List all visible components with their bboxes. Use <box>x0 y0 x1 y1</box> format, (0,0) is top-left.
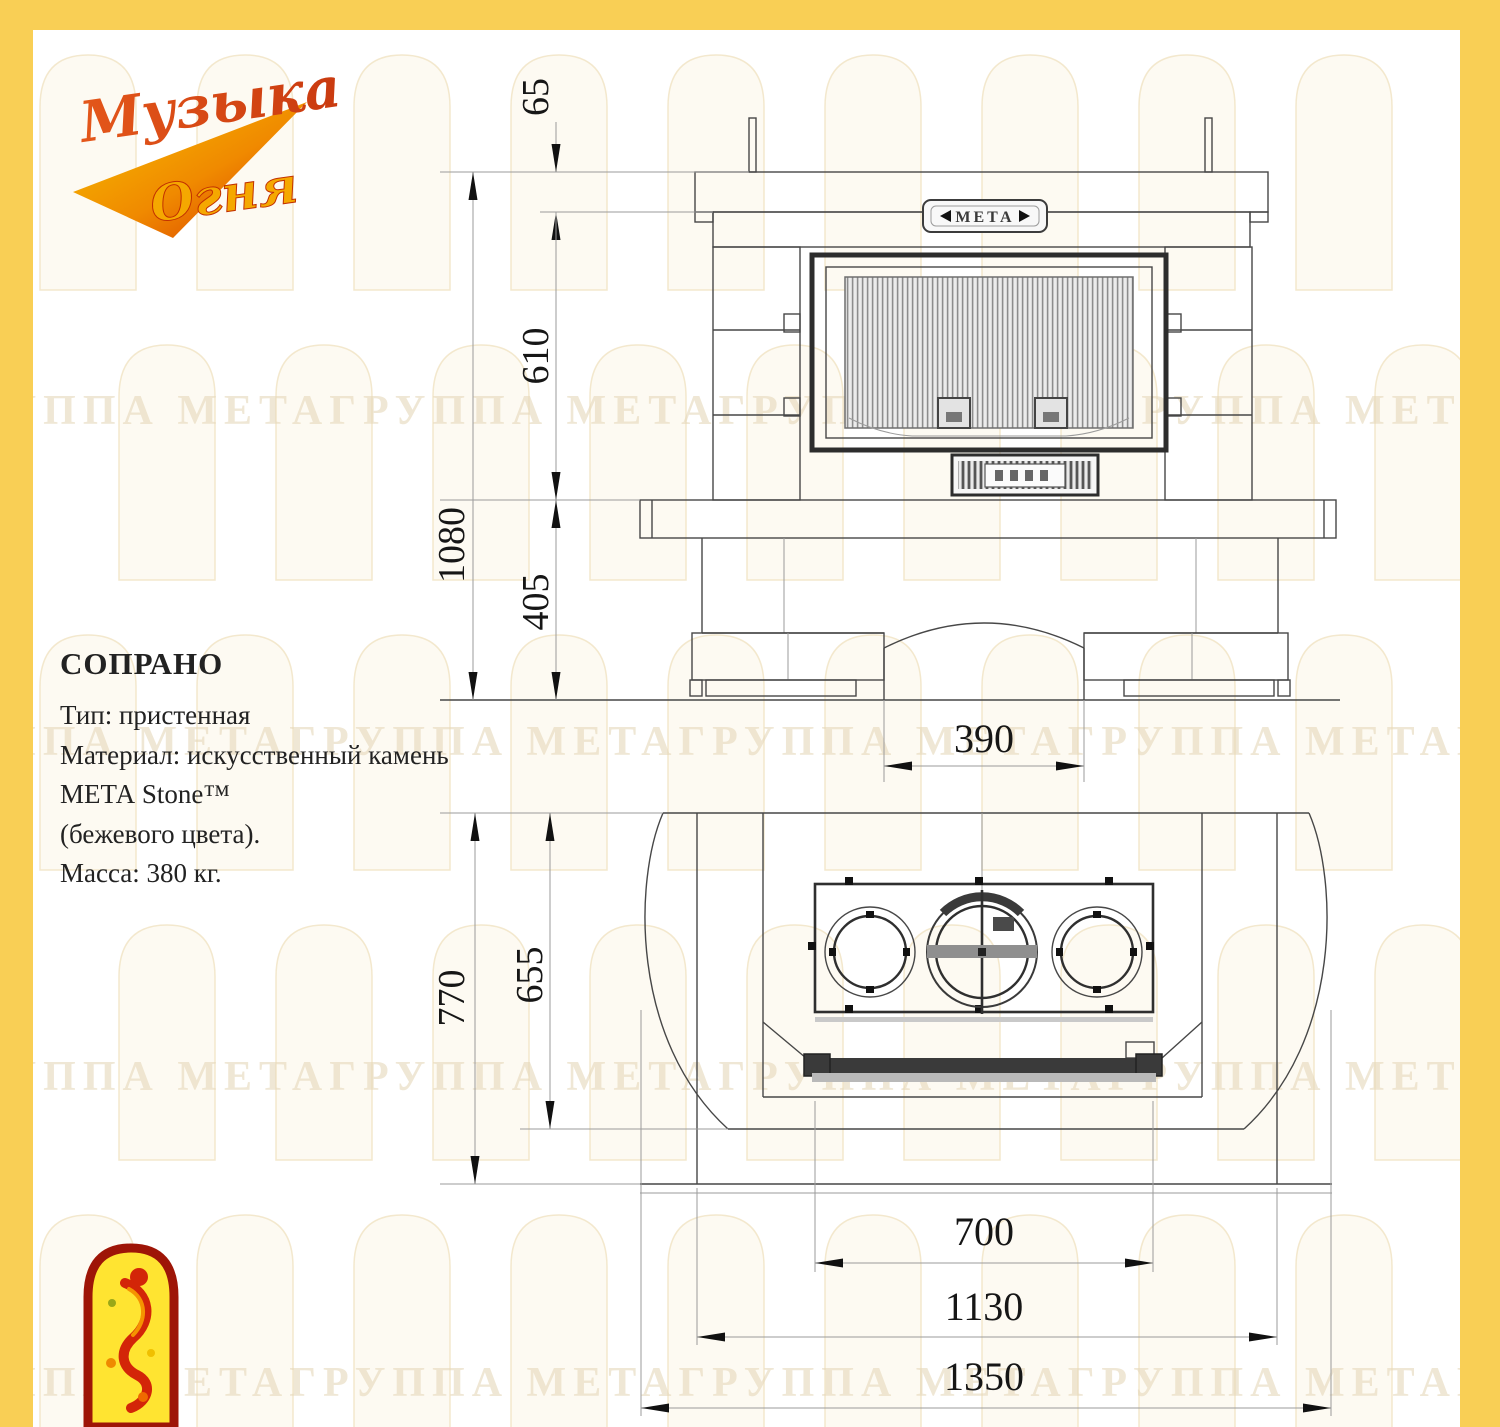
dim-total-height: 1080 <box>431 507 473 583</box>
plan-view: 770 655 700 1130 1350 <box>431 813 1332 1416</box>
nameplate-text: МЕТА <box>955 209 1014 226</box>
dim-base-height: 405 <box>515 574 557 631</box>
vent-grille <box>952 455 1098 495</box>
spec-text-block: СОПРАНО Тип: пристенная Материал: искусс… <box>60 646 449 894</box>
column-left <box>713 247 800 500</box>
emblem-dot-orange <box>106 1358 116 1368</box>
spec-mass: Масса: 380 кг. <box>60 854 449 894</box>
plan-side-right <box>1244 813 1327 1129</box>
base-arch-niche <box>884 623 1084 648</box>
dim-total-width: 1350 <box>944 1354 1024 1399</box>
front-dimensions: 1080 65 610 405 390 <box>431 78 1084 782</box>
mantel-end-cap-left <box>695 212 713 222</box>
plan-side-left <box>645 813 728 1129</box>
spec-material: Материал: искусственный камень <box>60 736 449 776</box>
dim-insert-width: 700 <box>954 1209 1014 1254</box>
flue-outlet-center <box>927 890 1037 1014</box>
frame-left <box>0 0 33 1427</box>
dim-firebox-height: 610 <box>515 328 557 385</box>
convection-outlet-left <box>825 907 915 997</box>
convection-outlet-right <box>1052 907 1142 997</box>
meta-nameplate: МЕТА <box>923 200 1047 232</box>
mantel-end-cap-right <box>1250 212 1268 222</box>
plan-glass-front <box>804 1054 1162 1082</box>
dim-niche-width: 390 <box>954 716 1014 761</box>
spec-material-color: (бежевого цвета). <box>60 815 449 855</box>
emblem-dot-orange2 <box>138 1392 148 1402</box>
model-name: СОПРАНО <box>60 646 449 682</box>
anchor-pipe-right <box>1205 118 1212 172</box>
dim-depth-inner: 655 <box>509 947 551 1004</box>
plan-splay-lines <box>763 1022 1202 1058</box>
glass-door <box>845 277 1133 428</box>
spec-material-brand: МЕТА Stone™ <box>60 775 449 815</box>
emblem-dot-yellow <box>147 1349 155 1357</box>
arch-emblem <box>83 1241 179 1427</box>
door-knob-right <box>1035 398 1067 428</box>
anchor-pipe-left <box>749 118 756 172</box>
spec-type: Тип: пристенная <box>60 696 449 736</box>
plan-dimensions: 770 655 700 1130 1350 <box>431 813 1331 1416</box>
emblem-dot-green <box>108 1299 116 1307</box>
front-view: МЕТА <box>431 78 1340 782</box>
dim-body-width: 1130 <box>945 1284 1024 1329</box>
dim-mantel-thickness: 65 <box>515 78 557 116</box>
hearth-shelf <box>640 500 1336 538</box>
door-knob-left <box>938 398 970 428</box>
brand-logo: Музыка Огня <box>55 40 375 255</box>
insert-front-ledge <box>815 1017 1153 1022</box>
frame-right <box>1460 0 1500 1427</box>
dim-depth-total: 770 <box>431 970 473 1027</box>
base <box>690 538 1290 700</box>
column-right <box>1165 247 1252 500</box>
spec-sheet-page: ГРУППА МЕТАГРУППА МЕТАГРУППА МЕТАГРУППА … <box>0 0 1500 1427</box>
firebox <box>812 255 1166 450</box>
frame-top <box>0 0 1500 30</box>
